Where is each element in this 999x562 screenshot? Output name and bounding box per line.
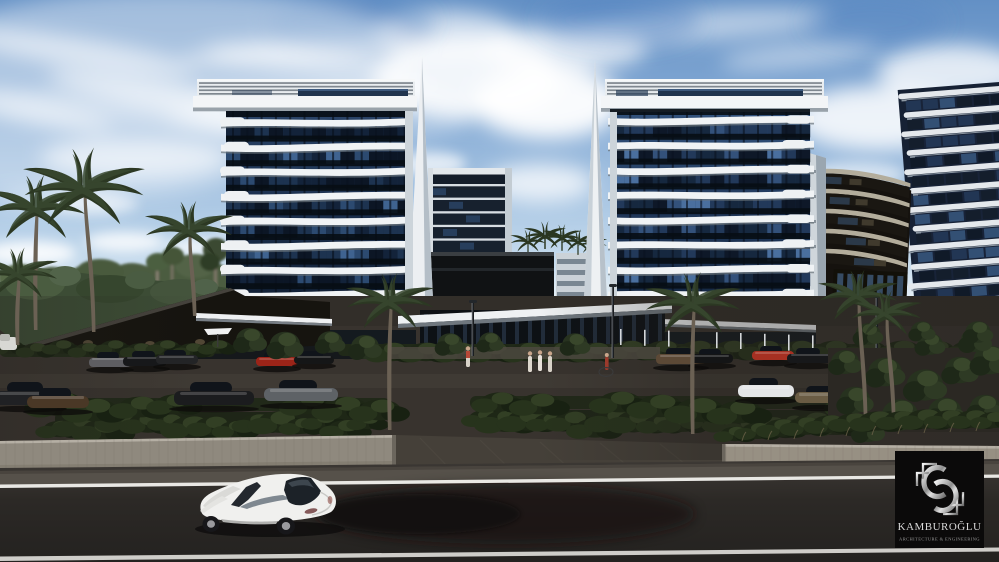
svg-text:ARCHITECTURE & ENGINEERING: ARCHITECTURE & ENGINEERING — [899, 537, 980, 542]
svg-text:KAMBUROĞLU: KAMBUROĞLU — [898, 521, 982, 533]
